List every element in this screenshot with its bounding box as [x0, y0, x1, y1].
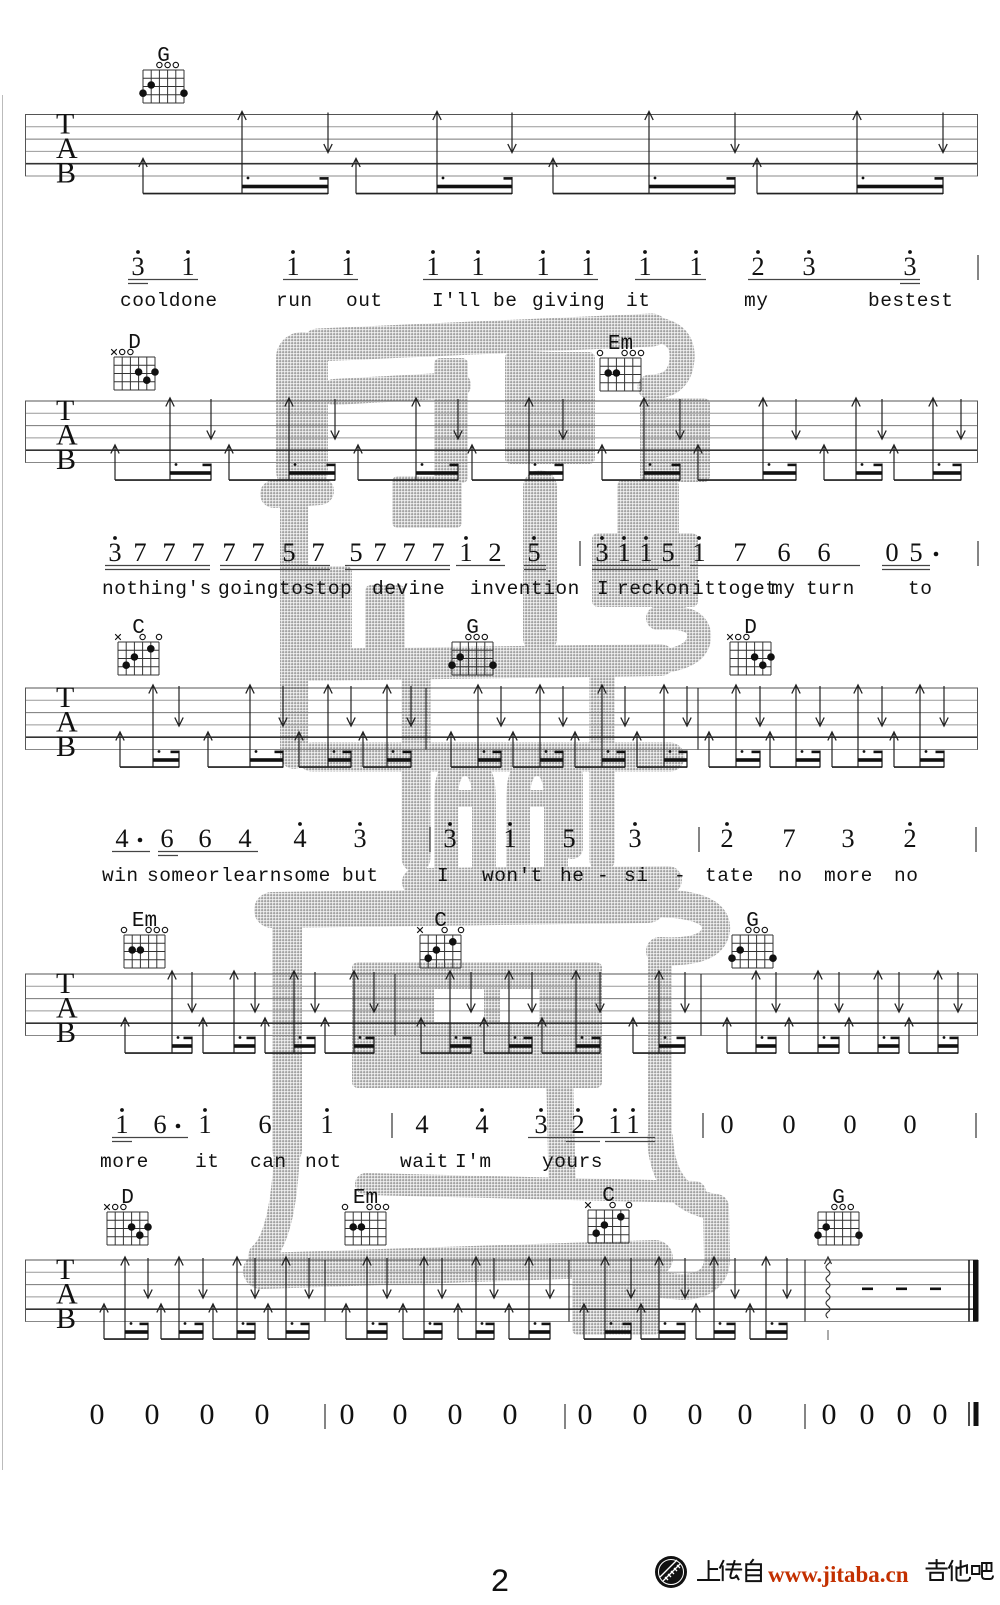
svg-text:0: 0 — [782, 1109, 795, 1139]
svg-text:wait: wait — [400, 1151, 449, 1173]
svg-text:he: he — [560, 865, 584, 887]
svg-text:3: 3 — [131, 251, 144, 281]
svg-text:2: 2 — [903, 823, 916, 853]
svg-text:G: G — [746, 910, 759, 933]
svg-text:1: 1 — [689, 251, 702, 281]
svg-text:turn: turn — [806, 578, 855, 600]
svg-text:win: win — [102, 865, 139, 887]
svg-text:or: or — [196, 865, 220, 887]
svg-text:3: 3 — [841, 823, 854, 853]
svg-text:G: G — [832, 1187, 845, 1210]
svg-text:0: 0 — [145, 1398, 160, 1431]
svg-text:1: 1 — [426, 251, 439, 281]
svg-text:1: 1 — [638, 251, 651, 281]
svg-text:7: 7 — [733, 537, 746, 567]
svg-text:0: 0 — [578, 1398, 593, 1431]
svg-text:Em: Em — [608, 333, 633, 356]
svg-text:C: C — [602, 1185, 615, 1208]
svg-text:0: 0 — [897, 1398, 912, 1431]
svg-text:2: 2 — [571, 1109, 584, 1139]
svg-text:6: 6 — [817, 537, 830, 567]
svg-text:7: 7 — [373, 537, 386, 567]
svg-text:B: B — [56, 443, 76, 476]
svg-text:0: 0 — [860, 1398, 875, 1431]
svg-text:4: 4 — [415, 1109, 428, 1139]
svg-text:3: 3 — [903, 251, 916, 281]
svg-text:giving: giving — [532, 290, 605, 312]
svg-text:2: 2 — [720, 823, 733, 853]
svg-text:but: but — [342, 865, 379, 887]
svg-text:1: 1 — [459, 537, 472, 567]
svg-text:G: G — [157, 45, 170, 68]
svg-text:4: 4 — [475, 1109, 488, 1139]
svg-text:7: 7 — [402, 537, 415, 567]
svg-text:my: my — [771, 578, 795, 600]
svg-text:1: 1 — [617, 537, 630, 567]
svg-text:-: - — [597, 865, 609, 887]
svg-text:no: no — [778, 865, 802, 887]
svg-text:cooldone: cooldone — [120, 290, 218, 312]
svg-text:I'll be: I'll be — [432, 290, 517, 312]
svg-text:C: C — [434, 910, 447, 933]
svg-text:D: D — [121, 1187, 134, 1210]
svg-text:3: 3 — [628, 823, 641, 853]
svg-text:5: 5 — [349, 537, 362, 567]
svg-text:0: 0 — [933, 1398, 948, 1431]
svg-text:nothing's: nothing's — [102, 578, 212, 600]
svg-text:si: si — [624, 865, 648, 887]
svg-text:run: run — [276, 290, 313, 312]
svg-text:goingtostop: goingtostop — [218, 578, 352, 600]
svg-text:Em: Em — [353, 1187, 378, 1210]
svg-text:0: 0 — [393, 1398, 408, 1431]
svg-text:3: 3 — [802, 251, 815, 281]
svg-text:5: 5 — [909, 537, 922, 567]
svg-text:more: more — [100, 1151, 149, 1173]
svg-text:to: to — [908, 578, 932, 600]
svg-text:4: 4 — [293, 823, 306, 853]
svg-text:0: 0 — [688, 1398, 703, 1431]
svg-text:0: 0 — [843, 1109, 856, 1139]
svg-text:3: 3 — [353, 823, 366, 853]
svg-text:B: B — [56, 730, 76, 763]
svg-text:7: 7 — [133, 537, 146, 567]
svg-text:yours: yours — [542, 1151, 603, 1173]
svg-text:0: 0 — [903, 1109, 916, 1139]
svg-text:0: 0 — [738, 1398, 753, 1431]
svg-text:no: no — [894, 865, 918, 887]
svg-text:4: 4 — [238, 823, 251, 853]
svg-text:7: 7 — [222, 537, 235, 567]
svg-text:1: 1 — [115, 1109, 128, 1139]
svg-text:5: 5 — [282, 537, 295, 567]
svg-text:0: 0 — [448, 1398, 463, 1431]
svg-text:6: 6 — [198, 823, 211, 853]
svg-text:1: 1 — [626, 1109, 639, 1139]
svg-text:some: some — [147, 865, 196, 887]
svg-text:0: 0 — [90, 1398, 105, 1431]
svg-text:5: 5 — [527, 537, 540, 567]
svg-text:I'm: I'm — [455, 1151, 492, 1173]
svg-text:3: 3 — [443, 823, 456, 853]
svg-text:7: 7 — [251, 537, 264, 567]
svg-text:1: 1 — [471, 251, 484, 281]
svg-text:1: 1 — [639, 537, 652, 567]
svg-text:-: - — [674, 865, 686, 887]
svg-text:7: 7 — [191, 537, 204, 567]
svg-text:2: 2 — [490, 1564, 509, 1600]
svg-text:0: 0 — [340, 1398, 355, 1431]
svg-text:6: 6 — [160, 823, 173, 853]
svg-text:6: 6 — [777, 537, 790, 567]
svg-text:reckon: reckon — [617, 578, 690, 600]
svg-text:invention: invention — [470, 578, 580, 600]
svg-text:0: 0 — [720, 1109, 733, 1139]
svg-text:1: 1 — [320, 1109, 333, 1139]
svg-text:7: 7 — [431, 537, 444, 567]
svg-text:5: 5 — [562, 823, 575, 853]
svg-text:won't: won't — [482, 865, 543, 887]
svg-text:C: C — [132, 617, 145, 640]
svg-text:1: 1 — [181, 251, 194, 281]
svg-text:out: out — [346, 290, 383, 312]
svg-text:Em: Em — [132, 910, 157, 933]
svg-text:bestest: bestest — [868, 290, 953, 312]
svg-text:2: 2 — [751, 251, 764, 281]
svg-text:0: 0 — [503, 1398, 518, 1431]
svg-text:1: 1 — [198, 1109, 211, 1139]
svg-text:7: 7 — [162, 537, 175, 567]
svg-text:4: 4 — [115, 823, 128, 853]
svg-text:ittoget: ittoget — [692, 578, 777, 600]
svg-text:can: can — [250, 1151, 287, 1173]
svg-text:0: 0 — [255, 1398, 270, 1431]
svg-text:G: G — [466, 617, 479, 640]
svg-text:1: 1 — [608, 1109, 621, 1139]
svg-text:1: 1 — [503, 823, 516, 853]
svg-text:it: it — [626, 290, 650, 312]
svg-text:6: 6 — [153, 1109, 166, 1139]
svg-text:not: not — [305, 1151, 342, 1173]
svg-text:B: B — [56, 1302, 76, 1335]
svg-text:learnsome: learnsome — [221, 865, 331, 887]
svg-text:1: 1 — [692, 537, 705, 567]
svg-text:0: 0 — [822, 1398, 837, 1431]
svg-text:more: more — [824, 865, 873, 887]
svg-text:3: 3 — [108, 537, 121, 567]
svg-text:1: 1 — [341, 251, 354, 281]
svg-text:1: 1 — [286, 251, 299, 281]
svg-text:D: D — [128, 332, 141, 355]
svg-text:I: I — [437, 865, 449, 887]
svg-text:www.jitaba.cn: www.jitaba.cn — [768, 1562, 909, 1587]
svg-text:5: 5 — [661, 537, 674, 567]
svg-text:0: 0 — [885, 537, 898, 567]
svg-text:1: 1 — [581, 251, 594, 281]
svg-text:B: B — [56, 1016, 76, 1049]
svg-text:3: 3 — [595, 537, 608, 567]
svg-text:1: 1 — [536, 251, 549, 281]
svg-text:D: D — [744, 617, 757, 640]
svg-text:0: 0 — [200, 1398, 215, 1431]
svg-text:I: I — [597, 578, 609, 600]
svg-text:it: it — [195, 1151, 219, 1173]
svg-text:7: 7 — [311, 537, 324, 567]
svg-text:my: my — [744, 290, 768, 312]
svg-text:6: 6 — [258, 1109, 271, 1139]
svg-text:tate: tate — [705, 865, 754, 887]
svg-text:7: 7 — [782, 823, 795, 853]
svg-text:0: 0 — [633, 1398, 648, 1431]
svg-text:B: B — [56, 157, 76, 190]
svg-text:2: 2 — [488, 537, 501, 567]
svg-text:3: 3 — [534, 1109, 547, 1139]
svg-text:devine: devine — [372, 578, 445, 600]
